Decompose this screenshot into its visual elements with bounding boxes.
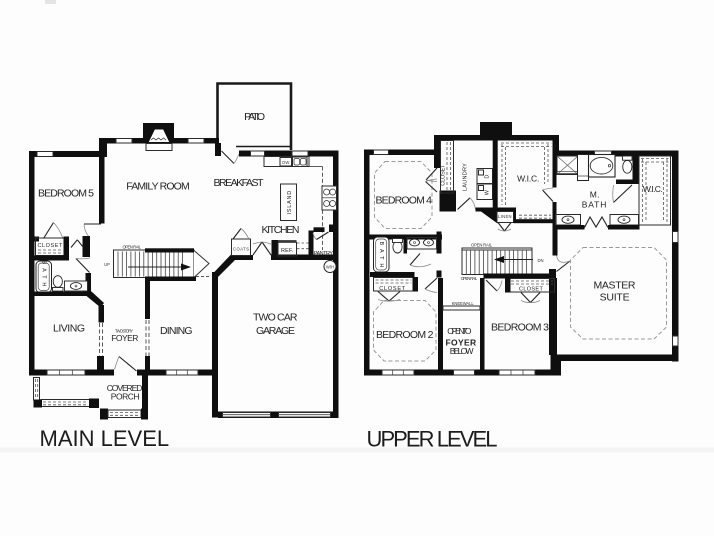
svg-text:FAMILY ROOM: FAMILY ROOM [126,181,190,193]
svg-text:DINING: DINING [160,325,193,337]
svg-text:PANTRY: PANTRY [314,251,334,257]
svg-text:M.: M. [590,190,600,200]
svg-text:PATIO: PATIO [244,111,265,123]
svg-text:D: D [485,174,491,178]
svg-text:CLOSET: CLOSET [519,287,543,293]
svg-text:BEDROOM 4: BEDROOM 4 [375,195,432,207]
svg-text:KITCHEN: KITCHEN [262,224,300,236]
svg-text:BREAKFAST: BREAKFAST [214,177,265,189]
svg-text:MASTER: MASTER [594,280,636,292]
svg-text:OPEN RAIL: OPEN RAIL [471,242,493,247]
svg-text:BEDROOM 5: BEDROOM 5 [38,188,94,200]
svg-text:LAUNDRY: LAUNDRY [463,163,469,191]
svg-text:LIVING: LIVING [53,323,85,335]
svg-text:PORCH: PORCH [111,392,140,402]
svg-text:BEDROOM 2: BEDROOM 2 [376,329,434,341]
svg-text:OPEN TO: OPEN TO [447,326,472,336]
svg-text:DW: DW [282,160,289,165]
svg-text:ISLAND: ISLAND [287,191,293,215]
svg-text:COATS: COATS [233,247,249,252]
svg-text:W.I.C.: W.I.C. [517,173,540,183]
svg-text:GARAGE: GARAGE [256,325,295,337]
svg-text:MAIN LEVEL: MAIN LEVEL [40,426,170,451]
svg-text:FOYER: FOYER [111,333,139,343]
svg-text:CLOSET: CLOSET [379,286,405,292]
svg-text:BATH: BATH [582,200,607,210]
svg-text:LINEN: LINEN [498,214,512,219]
svg-text:REF.: REF. [281,248,294,254]
svg-text:UP: UP [104,262,110,267]
svg-text:KNEEWALL: KNEEWALL [452,301,475,306]
svg-text:BELOW: BELOW [450,346,474,356]
svg-text:UPPER LEVEL: UPPER LEVEL [367,427,498,452]
svg-text:TWO CAR: TWO CAR [253,312,298,324]
svg-text:W.I.C.: W.I.C. [643,184,663,194]
svg-text:CLOSET: CLOSET [440,164,446,186]
svg-text:W: W [485,189,491,195]
svg-text:W/H: W/H [326,264,334,269]
svg-text:OPEN RAIL: OPEN RAIL [122,245,141,250]
svg-text:BEDROOM 3: BEDROOM 3 [491,322,549,334]
svg-text:SUITE: SUITE [600,292,630,304]
svg-text:DN: DN [537,258,543,263]
svg-text:CLOSET: CLOSET [38,243,63,249]
svg-text:OPEN RAIL: OPEN RAIL [461,276,478,281]
